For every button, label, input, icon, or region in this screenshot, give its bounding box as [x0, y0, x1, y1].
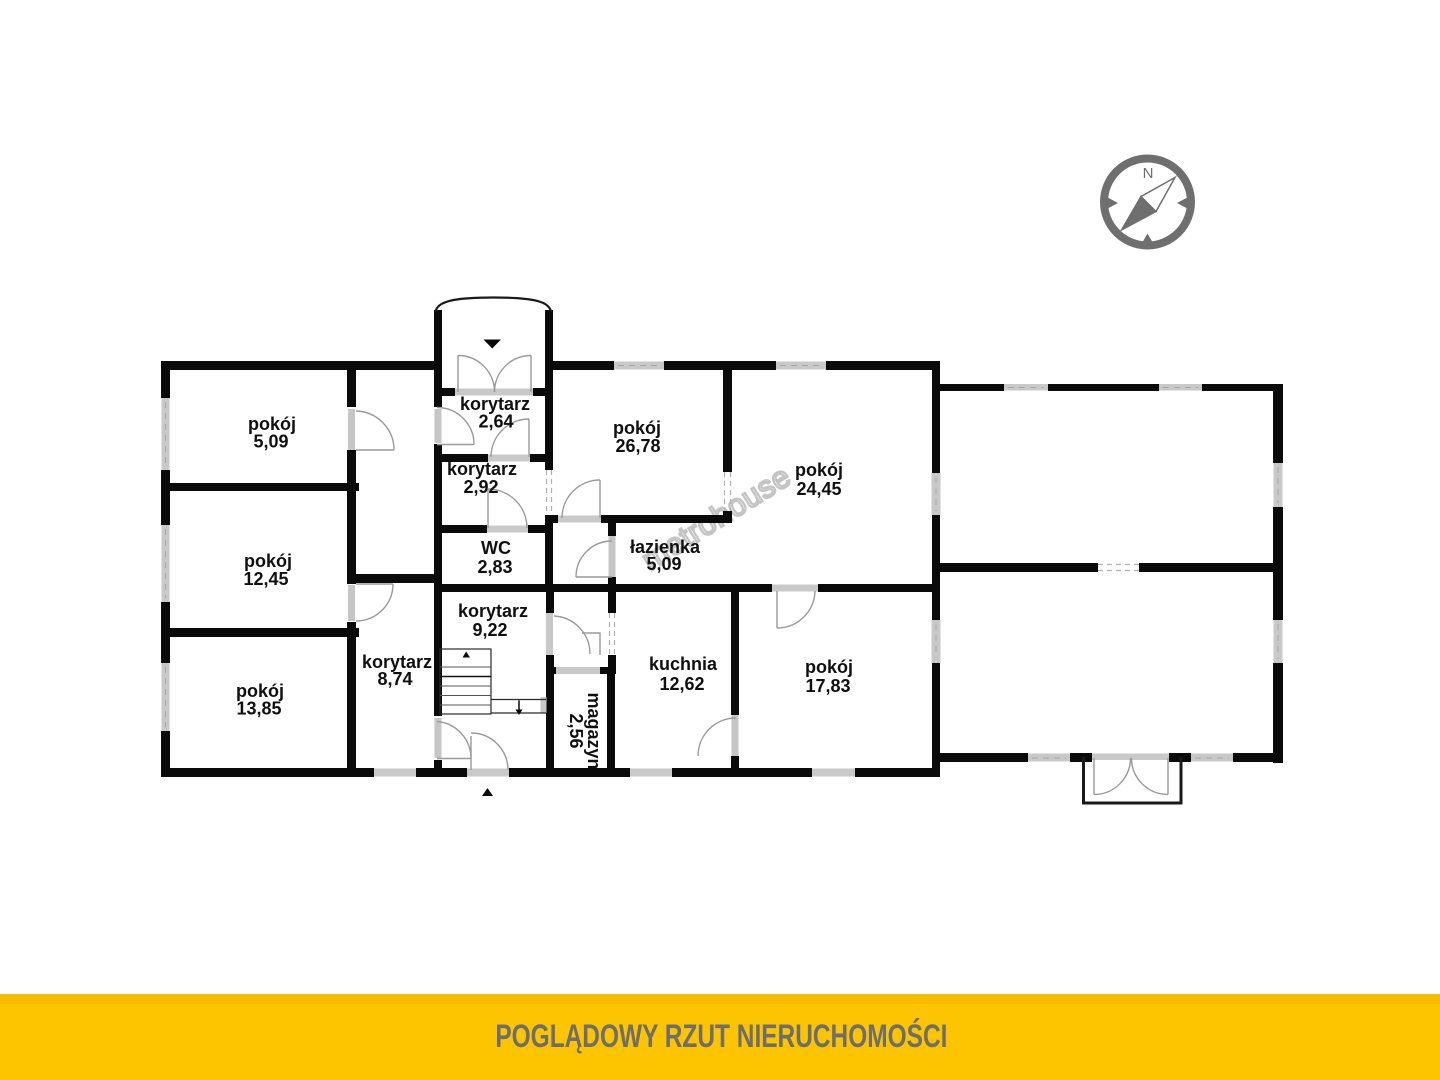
svg-text:2,83: 2,83 [477, 557, 512, 577]
svg-text:POGLĄDOWY RZUT NIERUCHOMOŚCI: POGLĄDOWY RZUT NIERUCHOMOŚCI [495, 1019, 947, 1055]
svg-text:12,62: 12,62 [659, 674, 704, 694]
svg-text:5,09: 5,09 [646, 554, 681, 574]
svg-text:pokój: pokój [244, 551, 292, 571]
svg-text:12,45: 12,45 [243, 569, 288, 589]
svg-text:2,56: 2,56 [566, 713, 586, 748]
svg-text:N: N [1143, 165, 1154, 182]
svg-text:24,45: 24,45 [796, 479, 841, 499]
svg-text:17,83: 17,83 [805, 676, 850, 696]
svg-text:korytarz: korytarz [447, 459, 517, 479]
svg-text:pokój: pokój [805, 657, 853, 677]
svg-text:2,64: 2,64 [478, 412, 513, 432]
svg-text:korytarz: korytarz [458, 601, 528, 621]
svg-text:26,78: 26,78 [615, 436, 660, 456]
svg-text:9,22: 9,22 [472, 620, 507, 640]
svg-text:pokój: pokój [795, 460, 843, 480]
svg-text:8,74: 8,74 [377, 669, 412, 689]
svg-text:5,09: 5,09 [253, 432, 288, 452]
svg-text:kuchnia: kuchnia [649, 654, 718, 674]
svg-text:13,85: 13,85 [236, 699, 281, 719]
svg-text:2,92: 2,92 [463, 477, 498, 497]
svg-text:magazyn: magazyn [584, 692, 604, 769]
svg-text:pokój: pokój [613, 418, 661, 438]
svg-text:WC: WC [481, 538, 511, 558]
